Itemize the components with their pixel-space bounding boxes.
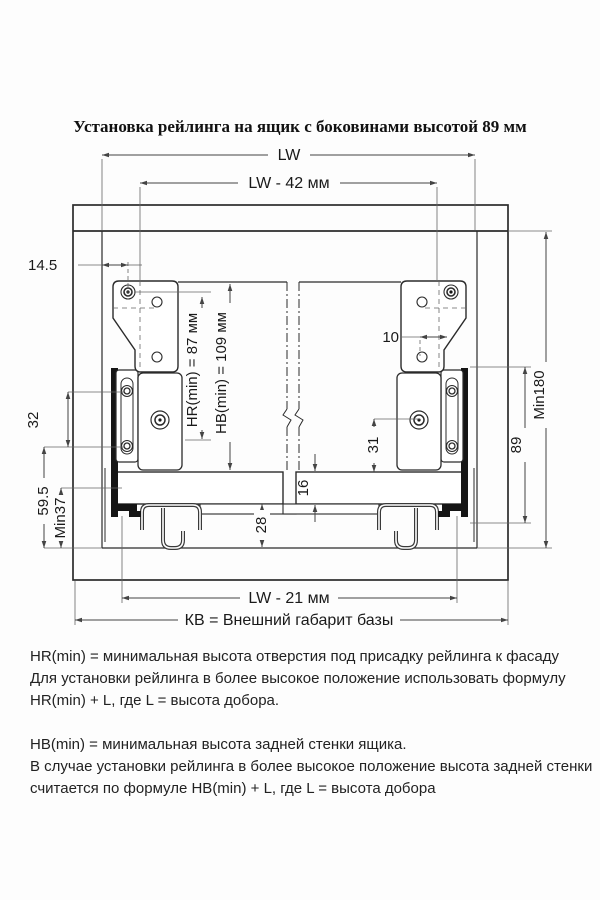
- notes-block: HR(min) = минимальная высота отверстия п…: [30, 646, 585, 822]
- dim-label-min37: Min37: [52, 498, 69, 539]
- note-hr: HR(min) = минимальная высота отверстия п…: [30, 646, 585, 712]
- dim-label-hr-min: HR(min) = 87 мм: [184, 313, 201, 427]
- slide-flange: [200, 504, 296, 514]
- railing-bracket: [113, 281, 178, 372]
- note-line: HB(min) = минимальная высота задней стен…: [30, 736, 407, 753]
- dim-label-14-5: 14.5: [28, 257, 57, 274]
- extension-lines: [44, 159, 552, 625]
- dim-label-16: 16: [295, 480, 312, 497]
- dim-label-lw-minus-42: LW - 42 мм: [248, 175, 329, 192]
- drawer-bottom-board: [115, 472, 283, 504]
- slide-profile: [142, 505, 200, 548]
- dim-label-hb-min: HB(min) = 109 мм: [213, 312, 230, 434]
- slotted-plate: [116, 370, 138, 462]
- break-symbol: [283, 409, 291, 427]
- note-hb: HB(min) = минимальная высота задней стен…: [30, 734, 585, 800]
- dim-label-31: 31: [365, 437, 382, 454]
- dim-label-lw: LW: [278, 147, 302, 164]
- dim-label-28: 28: [253, 517, 270, 534]
- side-plate: [138, 373, 182, 470]
- note-line: Для установки рейлинга в более высокое п…: [30, 670, 566, 687]
- dim-label-lw-minus-21: LW - 21 мм: [248, 590, 329, 607]
- dim-label-59-5: 59.5: [35, 486, 52, 515]
- note-line: В случае установки рейлинга в более высо…: [30, 758, 592, 775]
- installation-diagram: LW LW - 42 мм 14.5 HR(min) = 87 мм HB(mi…: [0, 0, 600, 645]
- dim-label-min180: Min180: [531, 370, 548, 419]
- dim-label-kb: КВ = Внешний габарит базы: [185, 612, 394, 629]
- dim-label-32: 32: [25, 412, 42, 429]
- note-line: HR(min) + L, где L = высота добора.: [30, 692, 279, 709]
- dim-label-89: 89: [508, 437, 525, 454]
- break-symbol: [295, 409, 303, 427]
- dim-label-10: 10: [382, 329, 399, 346]
- note-line: считается по формуле HB(min) + L, где L …: [30, 780, 436, 797]
- note-line: HR(min) = минимальная высота отверстия п…: [30, 648, 559, 665]
